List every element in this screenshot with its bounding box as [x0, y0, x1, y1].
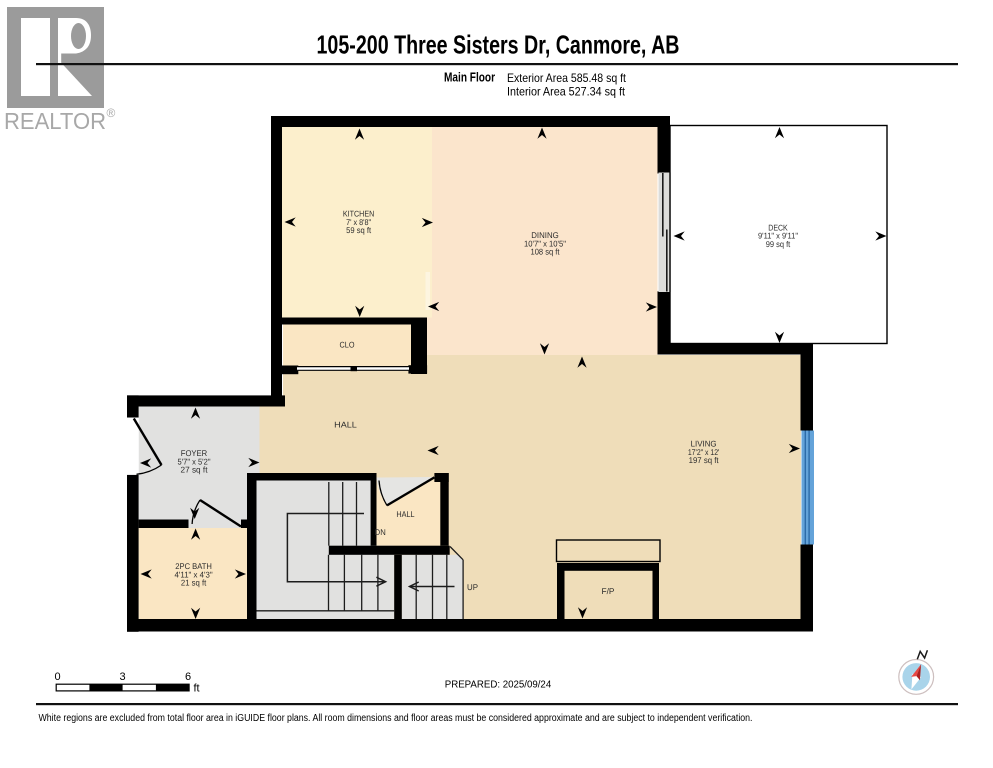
svg-text:6: 6 — [185, 671, 191, 683]
svg-text:PREPARED: 2025/09/24: PREPARED: 2025/09/24 — [445, 680, 552, 691]
svg-text:197 sq ft: 197 sq ft — [689, 455, 720, 465]
svg-text:21 sq ft: 21 sq ft — [181, 578, 207, 588]
svg-text:27 sq ft: 27 sq ft — [181, 465, 209, 475]
svg-text:F/P: F/P — [602, 586, 615, 596]
svg-text:3: 3 — [119, 671, 125, 683]
svg-text:0: 0 — [54, 671, 60, 683]
svg-text:White regions are excluded fro: White regions are excluded from total fl… — [39, 713, 753, 724]
svg-text:REALTOR: REALTOR — [4, 108, 106, 134]
svg-text:ft: ft — [194, 682, 200, 694]
svg-text:CLO: CLO — [340, 340, 355, 350]
svg-text:HALL: HALL — [334, 420, 357, 430]
svg-text:59 sq ft: 59 sq ft — [346, 225, 372, 235]
svg-text:Exterior Area 585.48 sq ft: Exterior Area 585.48 sq ft — [507, 71, 627, 85]
svg-text:DN: DN — [375, 527, 386, 537]
svg-text:Interior Area 527.34 sq ft: Interior Area 527.34 sq ft — [507, 84, 626, 98]
svg-text:99 sq ft: 99 sq ft — [766, 239, 791, 249]
svg-text:®: ® — [107, 106, 116, 120]
svg-text:Main Floor: Main Floor — [444, 71, 495, 85]
svg-text:UP: UP — [467, 582, 478, 592]
svg-text:108 sq ft: 108 sq ft — [531, 247, 561, 257]
svg-text:HALL: HALL — [396, 509, 415, 519]
svg-text:105-200 Three Sisters Dr, Canm: 105-200 Three Sisters Dr, Canmore, AB — [317, 30, 680, 60]
